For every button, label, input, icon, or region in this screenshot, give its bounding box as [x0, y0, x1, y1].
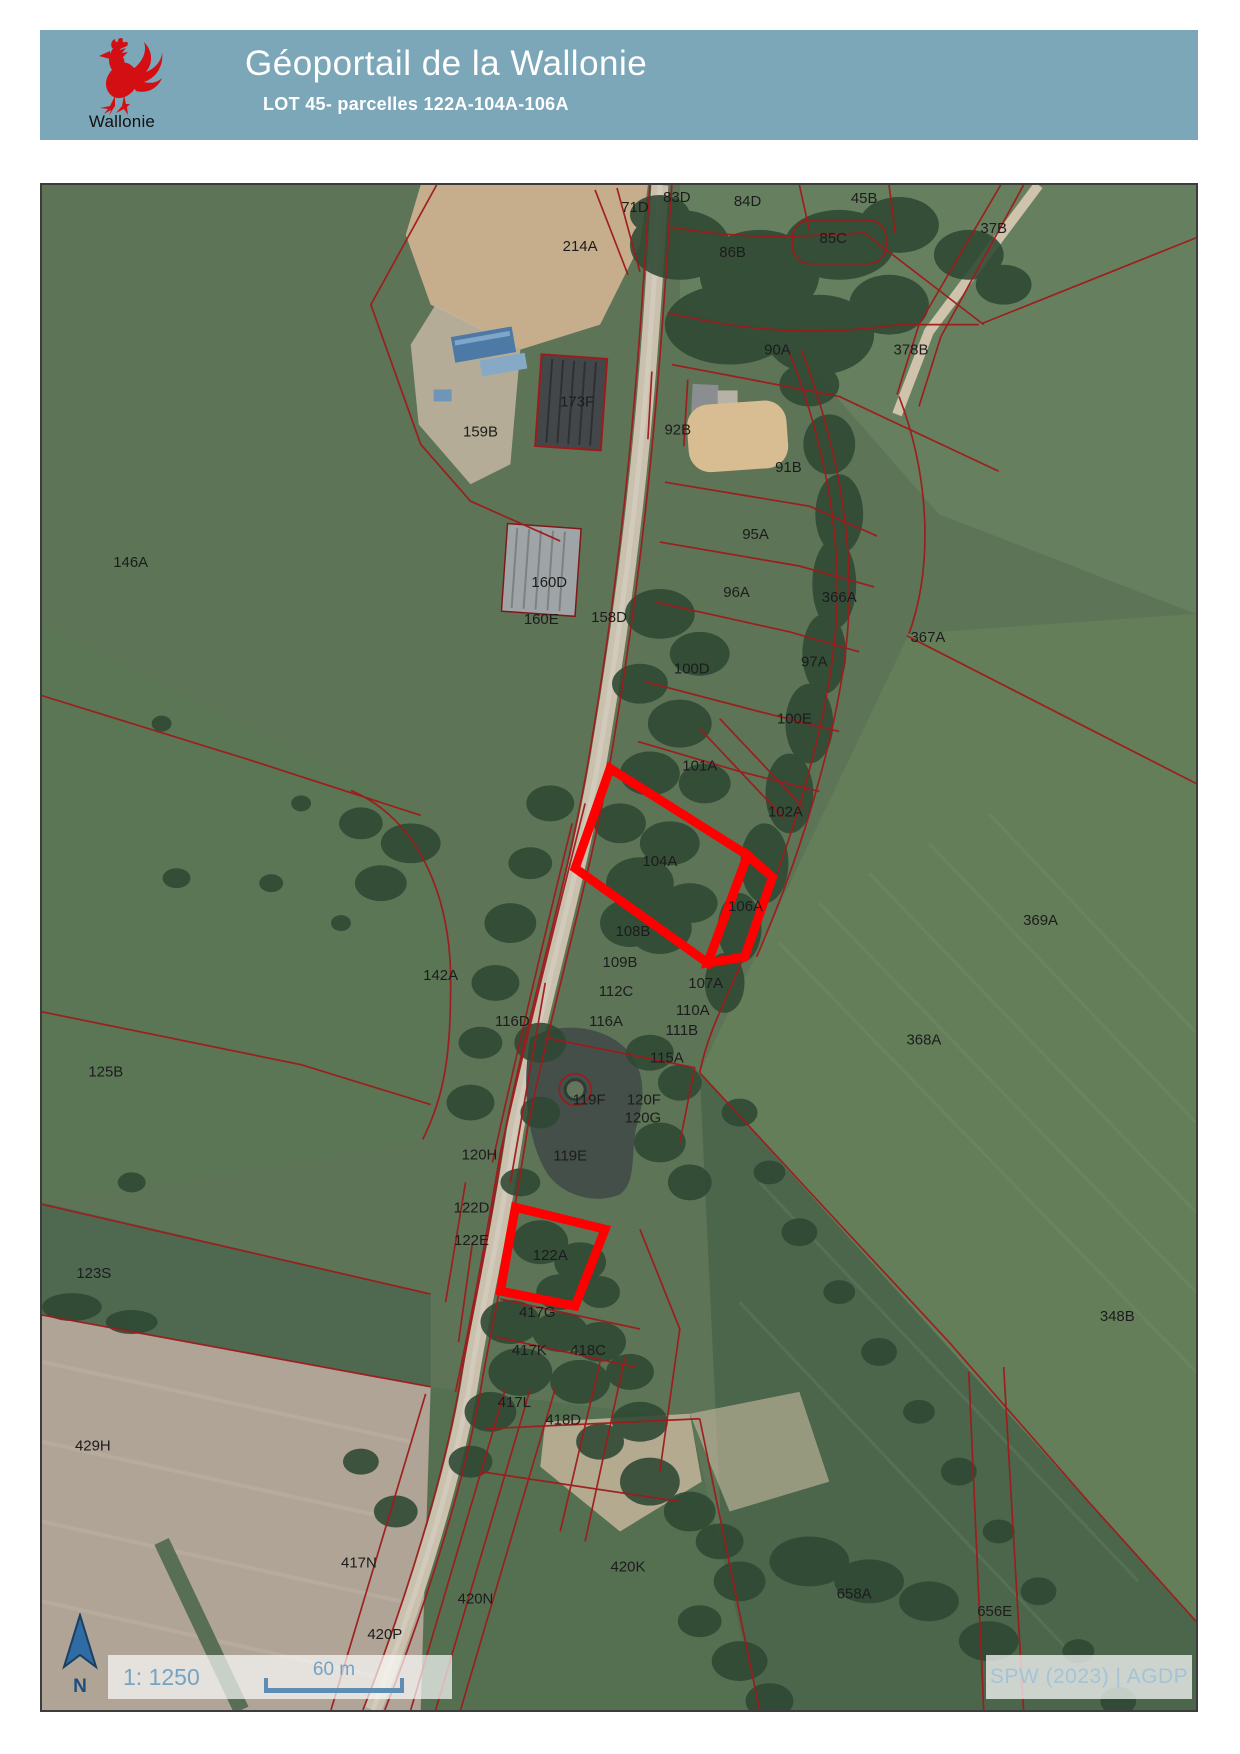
parcel-label-119E: 119E [553, 1147, 587, 1164]
map-canvas: 71D83D84D45B37B214A86B85C90A378B173F159B… [40, 183, 1198, 1712]
parcel-label-368A: 368A [907, 1032, 942, 1049]
parcel-label-417N: 417N [341, 1554, 377, 1571]
parcel-label-116D: 116D [495, 1013, 530, 1030]
parcel-label-90A: 90A [764, 342, 791, 359]
logo-wordmark: Wallonie [62, 112, 182, 132]
parcel-label-125B: 125B [88, 1064, 123, 1081]
parcel-label-214A: 214A [563, 238, 598, 255]
parcel-label-366A: 366A [822, 589, 857, 606]
parcel-label-104A: 104A [642, 853, 677, 870]
scale-bar-bracket [264, 1678, 404, 1693]
parcel-label-45B: 45B [851, 190, 878, 207]
parcel-label-115A: 115A [650, 1050, 684, 1067]
parcel-label-102A: 102A [768, 803, 803, 820]
parcel-label-417L: 417L [498, 1394, 531, 1411]
parcel-label-369A: 369A [1023, 912, 1058, 929]
parcel-label-107A: 107A [688, 975, 723, 992]
parcel-label-123S: 123S [76, 1265, 111, 1282]
parcel-label-119F: 119F [573, 1092, 606, 1109]
parcel-label-417G: 417G [519, 1304, 556, 1321]
parcel-label-378B: 378B [894, 342, 929, 359]
parcel-label-85C: 85C [820, 230, 848, 247]
parcel-label-92B: 92B [665, 421, 692, 438]
parcel-label-120F: 120F [627, 1092, 661, 1109]
parcel-label-110A: 110A [676, 1002, 710, 1019]
north-label: N [58, 1676, 102, 1698]
north-arrow-icon [58, 1613, 102, 1673]
parcel-label-420K: 420K [611, 1558, 646, 1575]
parcel-label-658A: 658A [837, 1585, 872, 1602]
parcel-label-97A: 97A [801, 654, 828, 671]
attribution: SPW (2023) | AGDP [986, 1655, 1192, 1699]
parcel-label-159B: 159B [463, 423, 498, 440]
parcel-label-106A: 106A [728, 898, 763, 915]
parcel-label-91B: 91B [775, 459, 802, 476]
page-title: Géoportail de la Wallonie [245, 44, 647, 84]
parcel-label-108B: 108B [616, 923, 651, 940]
parcel-label-418C: 418C [570, 1342, 606, 1359]
parcel-label-142A: 142A [423, 967, 458, 984]
wallonie-logo: Wallonie [62, 34, 182, 138]
parcel-label-101A: 101A [682, 757, 717, 774]
parcel-label-158D: 158D [591, 609, 627, 626]
parcel-label-122E: 122E [454, 1232, 489, 1249]
parcel-label-83D: 83D [663, 189, 691, 206]
parcel-label-71D: 71D [621, 199, 649, 216]
scale-box: 1: 1250 60 m [108, 1655, 452, 1699]
parcel-label-348B: 348B [1100, 1308, 1135, 1325]
parcel-label-112C: 112C [599, 983, 634, 1000]
parcel-label-120G: 120G [625, 1110, 662, 1127]
parcel-label-429H: 429H [75, 1438, 111, 1455]
parcel-label-120H: 120H [462, 1146, 498, 1163]
parcel-label-367A: 367A [910, 629, 945, 646]
parcel-label-122A: 122A [533, 1247, 568, 1264]
parcel-label-116A: 116A [589, 1013, 623, 1030]
parcel-label-420P: 420P [367, 1626, 402, 1643]
aerial-imagery: 71D83D84D45B37B214A86B85C90A378B173F159B… [42, 185, 1196, 1710]
page: Wallonie Géoportail de la Wallonie LOT 4… [0, 0, 1240, 1754]
parcel-label-100D: 100D [674, 661, 710, 678]
parcel-label-122D: 122D [454, 1199, 490, 1216]
parcel-label-84D: 84D [734, 193, 762, 210]
parcel-label-420N: 420N [458, 1590, 494, 1607]
parcel-label-96A: 96A [723, 584, 750, 601]
north-arrow: N [58, 1613, 102, 1697]
rooster-icon [81, 36, 163, 116]
parcel-label-111B: 111B [665, 1022, 698, 1039]
parcel-label-109B: 109B [603, 954, 638, 971]
parcel-label-146A: 146A [113, 554, 148, 571]
parcel-label-37B: 37B [980, 220, 1007, 237]
parcel-label-95A: 95A [742, 526, 769, 543]
parcel-label-418D: 418D [545, 1412, 581, 1429]
parcel-label-656E: 656E [977, 1603, 1012, 1620]
parcel-label-86B: 86B [719, 244, 746, 261]
parcel-label-417K: 417K [512, 1342, 547, 1359]
header: Wallonie Géoportail de la Wallonie LOT 4… [40, 30, 1198, 140]
parcel-label-160E: 160E [524, 611, 559, 628]
scale-bar: 60 m [264, 1659, 404, 1693]
parcel-label-160D: 160D [531, 574, 567, 591]
scale-ratio: 1: 1250 [123, 1664, 200, 1691]
parcel-label-173F: 173F [560, 393, 594, 410]
parcel-label-100E: 100E [777, 711, 812, 728]
page-subtitle: LOT 45- parcelles 122A-104A-106A [263, 94, 647, 115]
